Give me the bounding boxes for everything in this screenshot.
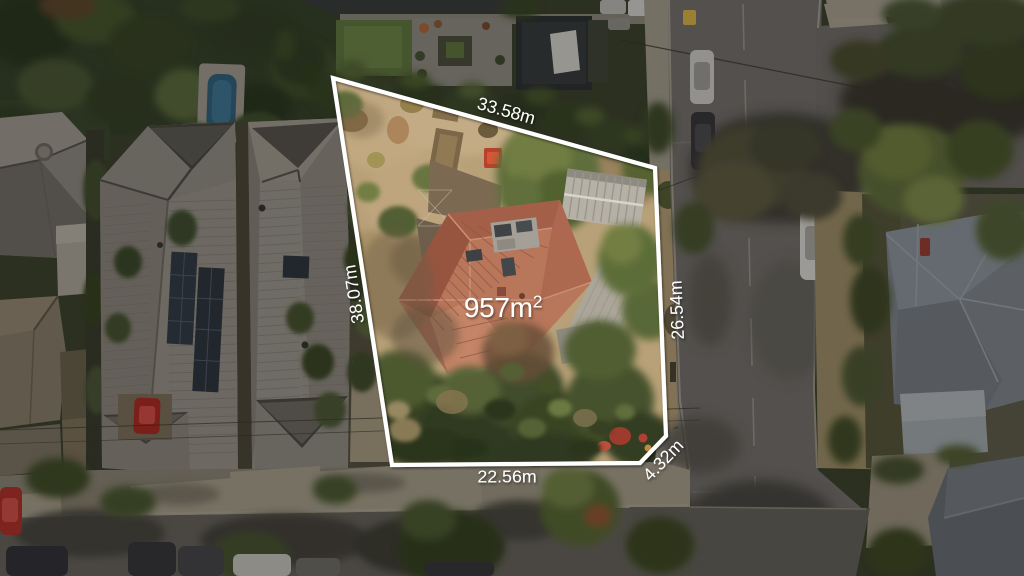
svg-text:957m2: 957m2	[464, 292, 542, 324]
svg-text:22.56m: 22.56m	[477, 467, 536, 487]
svg-text:26.54m: 26.54m	[665, 280, 687, 340]
